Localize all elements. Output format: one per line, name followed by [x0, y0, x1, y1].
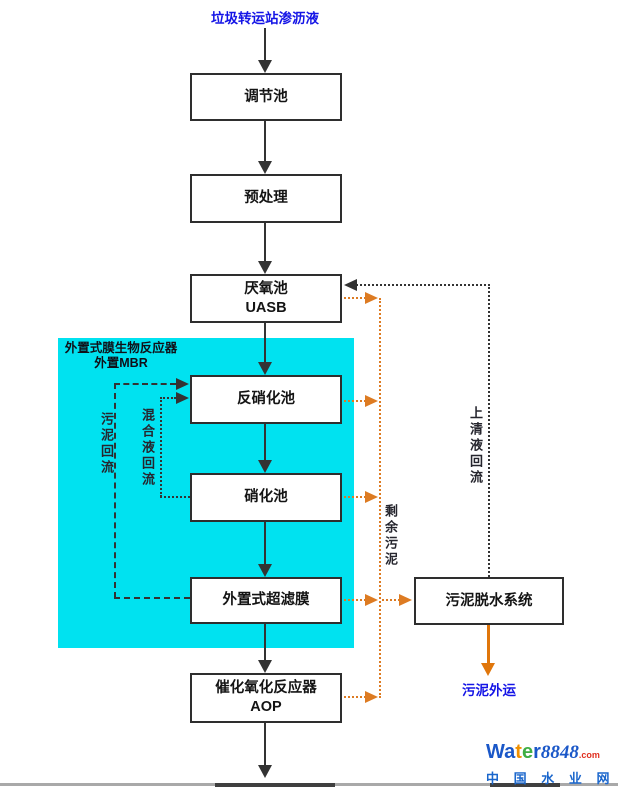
box-aop-reactor: 催化氧化反应器 AOP	[190, 673, 342, 723]
logo-letter-r: r	[533, 741, 541, 763]
arrowhead-right-icon	[365, 395, 378, 407]
arrowhead-down-icon	[258, 564, 272, 577]
arrowhead-down-icon	[258, 261, 272, 274]
arrowhead-right-icon	[365, 594, 378, 606]
label-mixed-liquor-return: 混合液回流	[140, 408, 154, 488]
box-sludge-dewatering-label: 污泥脱水系统	[446, 592, 533, 611]
excess-sludge-line-vertical	[379, 298, 381, 698]
label-excess-sludge: 剩余污泥	[383, 504, 397, 568]
flow-line-4	[264, 424, 266, 462]
excess-sludge-stub-nitrification	[344, 496, 366, 498]
box-regulation-tank-label: 调节池	[244, 88, 288, 107]
box-aop-label-line1: 催化氧化反应器	[215, 679, 317, 698]
box-regulation-tank: 调节池	[190, 73, 342, 121]
arrowhead-right-icon	[399, 594, 412, 606]
mbr-region-label: 外置式膜生物反应器 外置MBR	[60, 341, 182, 371]
box-uasb-label-line2: UASB	[245, 299, 286, 318]
flow-line-1	[264, 121, 266, 163]
bottom-table-border-segment	[215, 783, 335, 787]
box-uasb-anaerobic-tank: 厌氧池 UASB	[190, 274, 342, 323]
flow-line-2	[264, 223, 266, 263]
logo-letter-e: e	[522, 741, 533, 763]
arrowhead-left-icon	[344, 279, 357, 291]
logo-dotcom: .com	[579, 750, 600, 760]
flow-line-effluent	[264, 723, 266, 767]
mixed-liquor-return-line-bottom	[160, 496, 190, 498]
arrowhead-down-icon	[258, 460, 272, 473]
logo-number: 8848	[541, 742, 579, 763]
supernatant-return-line-horizontal	[356, 284, 490, 286]
mbr-region-label-line1: 外置式膜生物反应器	[60, 341, 182, 356]
excess-sludge-to-dewatering	[382, 599, 400, 601]
box-sludge-dewatering: 污泥脱水系统	[414, 577, 564, 625]
mbr-region-label-line2: 外置MBR	[60, 356, 182, 371]
box-external-uf-membrane-label: 外置式超滤膜	[223, 591, 310, 610]
mixed-liquor-return-line-top	[160, 397, 176, 399]
arrowhead-down-icon	[481, 663, 495, 676]
box-pretreatment: 预处理	[190, 174, 342, 223]
excess-sludge-stub-membrane	[344, 599, 366, 601]
label-supernatant-return: 上清液回流	[468, 406, 482, 486]
excess-sludge-stub-denitrification	[344, 400, 366, 402]
arrowhead-right-icon	[365, 691, 378, 703]
arrowhead-down-icon	[258, 60, 272, 73]
flow-line-6	[264, 624, 266, 662]
box-uasb-label-line1: 厌氧池	[244, 280, 288, 299]
influent-label: 垃圾转运站渗沥液	[165, 7, 365, 27]
flowchart-canvas: 外置式膜生物反应器 外置MBR 垃圾转运站渗沥液 调节池 预处理 厌氧池 UAS…	[0, 0, 618, 792]
logo-letter-t: t	[515, 741, 522, 763]
sludge-disposal-line	[487, 625, 490, 665]
water8848-logo: Water8848.com 中 国 水 业 网	[486, 742, 615, 787]
box-external-uf-membrane: 外置式超滤膜	[190, 577, 342, 624]
box-pretreatment-label: 预处理	[244, 189, 288, 208]
logo-letters-wa: Wa	[486, 741, 515, 763]
box-aop-label-line2: AOP	[250, 698, 281, 717]
sludge-return-line-top	[114, 383, 176, 385]
box-nitrification-label: 硝化池	[244, 488, 288, 507]
label-sludge-disposal: 污泥外运	[448, 679, 530, 699]
mixed-liquor-return-line-vertical	[160, 397, 162, 497]
sludge-return-line-vertical	[114, 383, 116, 598]
arrowhead-right-icon	[176, 392, 189, 404]
arrowhead-down-icon	[258, 161, 272, 174]
arrowhead-down-icon	[258, 765, 272, 778]
box-denitrification-label: 反硝化池	[237, 390, 295, 409]
arrowhead-right-icon	[365, 292, 378, 304]
arrowhead-down-icon	[258, 660, 272, 673]
water8848-logo-wordmark: Water8848.com	[486, 742, 615, 766]
box-denitrification-tank: 反硝化池	[190, 375, 342, 424]
arrowhead-right-icon	[365, 491, 378, 503]
arrowhead-down-icon	[258, 362, 272, 375]
arrowhead-right-icon	[176, 378, 189, 390]
flow-line-5	[264, 522, 266, 566]
flow-line-influent	[264, 28, 266, 63]
logo-chinese-name: 中 国 水 业 网	[486, 768, 615, 787]
supernatant-return-line-vertical	[488, 284, 490, 577]
sludge-return-line-bottom	[114, 597, 190, 599]
box-nitrification-tank: 硝化池	[190, 473, 342, 522]
flow-line-3	[264, 323, 266, 364]
excess-sludge-stub-aop	[344, 696, 366, 698]
label-sludge-return: 污泥回流	[99, 412, 113, 476]
excess-sludge-stub-uasb	[344, 297, 366, 299]
